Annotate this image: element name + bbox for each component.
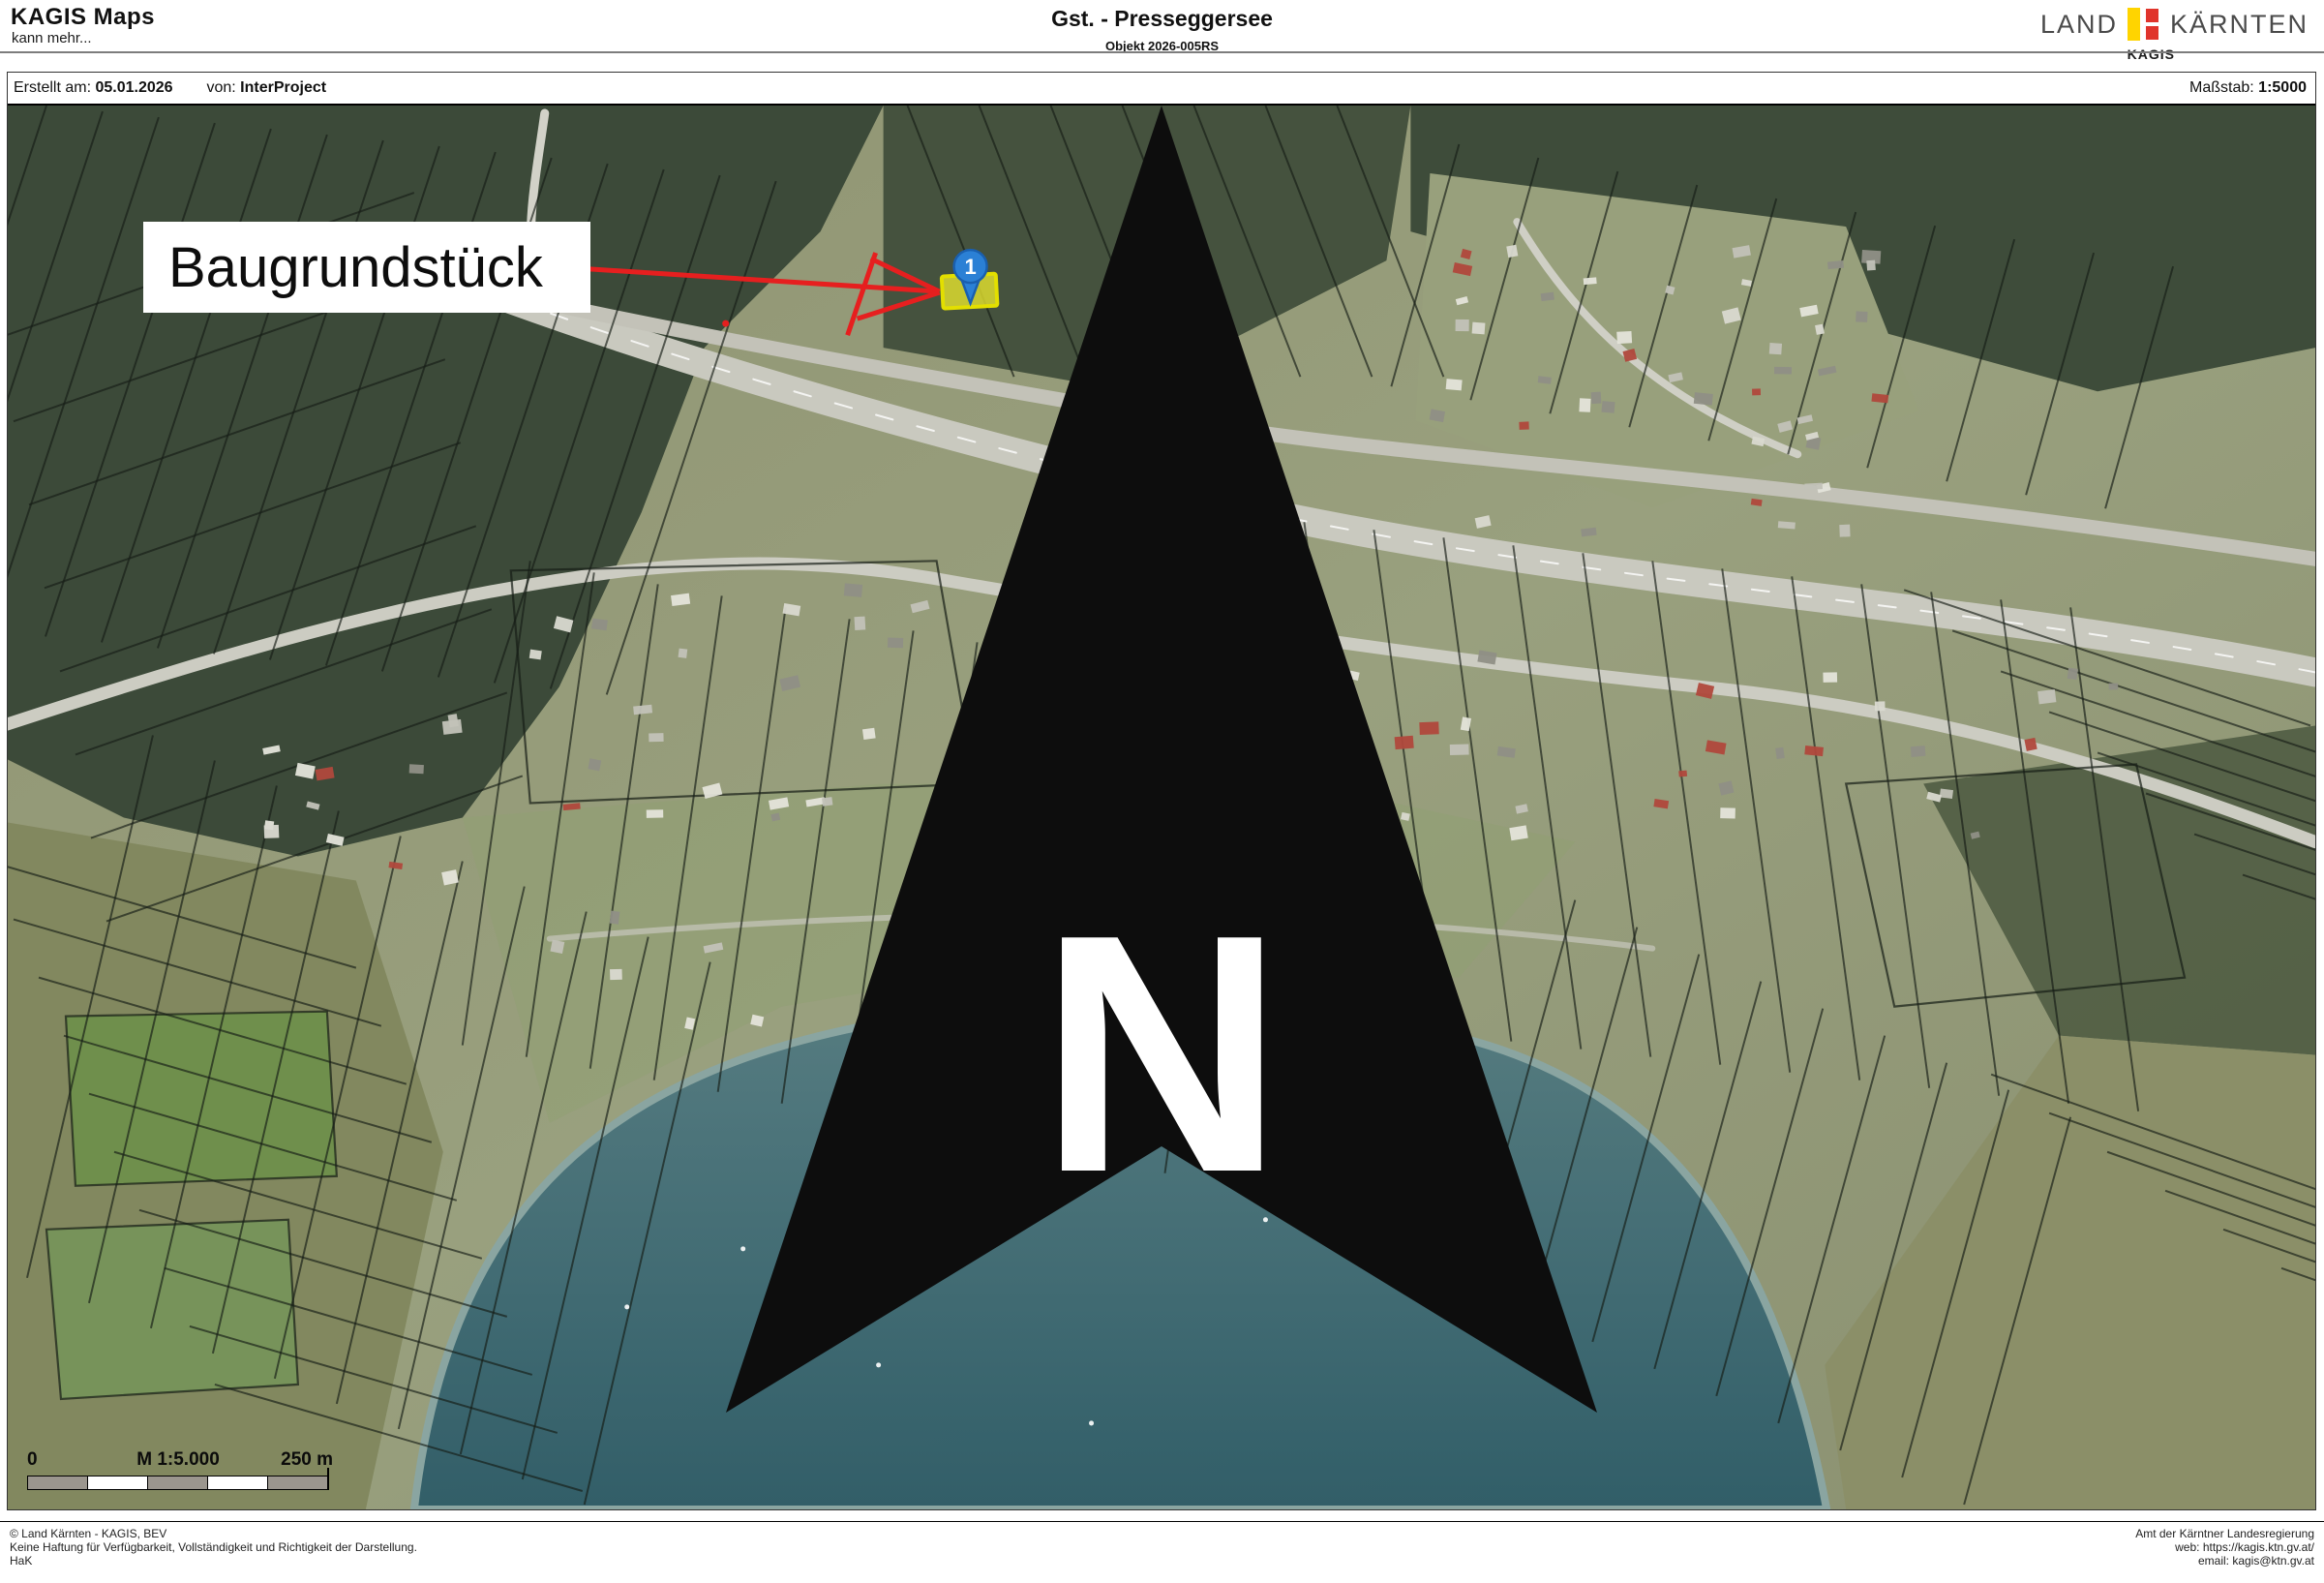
kaernten-emblem-icon [2128, 8, 2160, 41]
metadata-bar: Erstellt am: 05.01.2026 von: InterProjec… [8, 73, 2315, 104]
document-title: Gst. - Presseggersee [0, 6, 2324, 32]
created-label: Erstellt am: [14, 79, 91, 96]
north-arrow-icon: N [8, 106, 2315, 1509]
scale-label: Maßstab: [2189, 79, 2254, 96]
footer-line: web: https://kagis.ktn.gv.at/ [2135, 1540, 2314, 1554]
footer-contact: Amt der Kärntner Landesregierung web: ht… [2135, 1527, 2314, 1568]
footer-line: Keine Haftung für Verfügbarkeit, Vollstä… [10, 1540, 417, 1554]
map-canvas[interactable]: 1 Baugrundstück Hermagor-Pressegger See … [8, 104, 2315, 1509]
footer-copyright: © Land Kärnten - KAGIS, BEV Keine Haftun… [10, 1527, 417, 1568]
kagis-map-export: KAGIS Maps kann mehr... Gst. - Pressegge… [0, 0, 2324, 1583]
logo-text-kaernten: KÄRNTEN [2170, 10, 2309, 40]
header-divider [0, 51, 2324, 53]
created-info: Erstellt am: 05.01.2026 von: InterProjec… [14, 79, 326, 97]
created-value: 05.01.2026 [95, 79, 172, 96]
footer-divider [0, 1521, 2324, 1522]
scale-value: 1:5000 [2258, 79, 2307, 96]
footer-line: Amt der Kärntner Landesregierung [2135, 1527, 2314, 1540]
footer-line: HaK [10, 1554, 417, 1568]
north-letter: N [1040, 865, 1284, 1243]
footer-line: © Land Kärnten - KAGIS, BEV [10, 1527, 417, 1540]
footer-line: email: kagis@ktn.gv.at [2135, 1554, 2314, 1568]
by-label: von: [206, 79, 235, 96]
by-value: InterProject [240, 79, 326, 96]
land-kaernten-logo: LAND KÄRNTEN KAGIS [2028, 8, 2309, 66]
logo-text-kagis: KAGIS [2128, 46, 2175, 62]
logo-text-land: LAND [2040, 10, 2118, 40]
document-title-block: Gst. - Presseggersee Objekt 2026-005RS [0, 6, 2324, 53]
map-frame: Erstellt am: 05.01.2026 von: InterProjec… [7, 72, 2316, 1510]
scale-info: Maßstab: 1:5000 [2189, 79, 2307, 97]
